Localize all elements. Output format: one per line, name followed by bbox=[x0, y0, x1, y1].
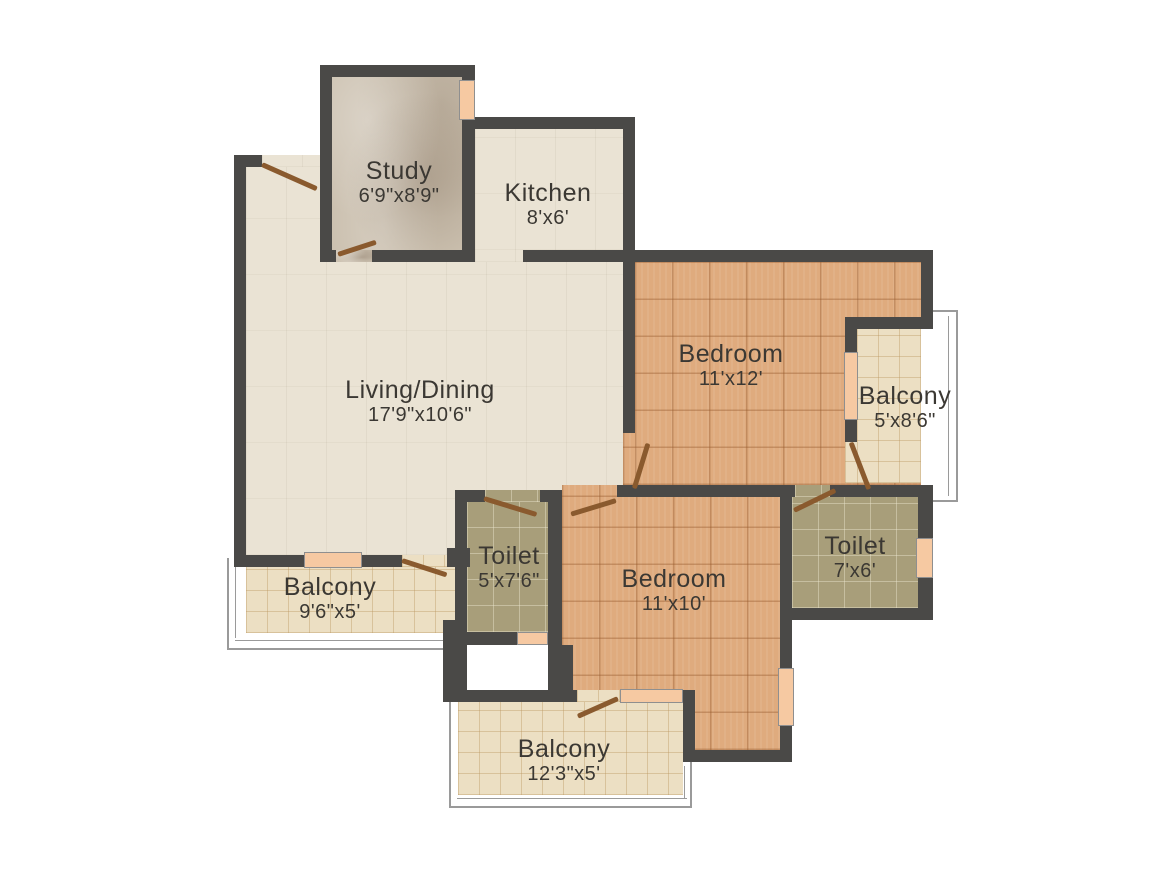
wall bbox=[234, 155, 246, 567]
wall bbox=[780, 608, 933, 620]
wall bbox=[455, 632, 517, 645]
room-name: Living/Dining bbox=[345, 376, 495, 404]
wall bbox=[372, 250, 475, 262]
wall bbox=[362, 555, 402, 567]
wall bbox=[780, 485, 795, 497]
balcony2-railing bbox=[227, 558, 229, 650]
bedroom1-label: Bedroom 11'x12' bbox=[679, 340, 784, 390]
wall bbox=[623, 117, 635, 262]
room-dims: 17'9"x10'6" bbox=[345, 404, 495, 426]
bedroom2-balcony-window bbox=[620, 689, 683, 703]
living-balcony-window bbox=[304, 552, 362, 568]
balcony2-railing bbox=[235, 562, 236, 638]
room-name: Toilet bbox=[824, 532, 885, 560]
toilet1-label: Toilet 5'x7'6" bbox=[478, 542, 540, 592]
room-dims: 5'x7'6" bbox=[478, 570, 540, 592]
room-dims: 9'6"x5' bbox=[284, 601, 376, 623]
balcony2-railing bbox=[227, 648, 461, 650]
room-name: Toilet bbox=[478, 542, 540, 570]
room-dims: 6'9"x8'9" bbox=[359, 185, 440, 207]
wall bbox=[548, 490, 562, 645]
bedroom2-doorway bbox=[562, 485, 617, 497]
kitchen-opening bbox=[475, 250, 523, 262]
room-dims: 11'x10' bbox=[622, 593, 727, 615]
toilet2-label: Toilet 7'x6' bbox=[824, 532, 885, 582]
balcony3-railing bbox=[449, 806, 692, 808]
bedroom1-doorway bbox=[623, 433, 635, 485]
balcony3-railing bbox=[684, 766, 685, 798]
balcony3-label: Balcony 12'3"x5' bbox=[518, 735, 610, 785]
wall bbox=[320, 65, 475, 77]
wall bbox=[320, 250, 336, 262]
room-name: Balcony bbox=[859, 382, 951, 410]
bedroom1-balcony-window bbox=[844, 352, 858, 420]
wall bbox=[455, 490, 467, 702]
wall bbox=[234, 555, 304, 567]
wall bbox=[320, 65, 332, 262]
bedroom2-window bbox=[778, 668, 794, 726]
room-name: Kitchen bbox=[505, 179, 592, 207]
toilet2-window bbox=[916, 538, 933, 578]
balcony3-railing bbox=[449, 702, 451, 808]
balcony2-label: Balcony 9'6"x5' bbox=[284, 573, 376, 623]
wall bbox=[560, 690, 577, 702]
kitchen-label: Kitchen 8'x6' bbox=[505, 179, 592, 229]
living-dining-label: Living/Dining 17'9"x10'6" bbox=[345, 376, 495, 426]
wall bbox=[683, 750, 792, 762]
balcony1-label: Balcony 5'x8'6" bbox=[859, 382, 951, 432]
room-dims: 8'x6' bbox=[505, 207, 592, 229]
room-dims: 5'x8'6" bbox=[859, 410, 951, 432]
duct-shaft bbox=[467, 645, 548, 690]
floor-plan: Study 6'9"x8'9" Kitchen 8'x6' Living/Din… bbox=[0, 0, 1160, 870]
room-name: Balcony bbox=[284, 573, 376, 601]
wall bbox=[635, 250, 933, 262]
study-window bbox=[459, 80, 475, 120]
toilet1-window bbox=[517, 632, 548, 645]
study-label: Study 6'9"x8'9" bbox=[359, 157, 440, 207]
wall bbox=[462, 117, 635, 129]
wall bbox=[623, 262, 635, 433]
balcony1-railing bbox=[933, 500, 958, 502]
room-name: Bedroom bbox=[679, 340, 784, 368]
room-name: Study bbox=[359, 157, 440, 185]
balcony2-railing bbox=[235, 640, 457, 641]
wall bbox=[523, 250, 635, 262]
room-dims: 12'3"x5' bbox=[518, 763, 610, 785]
room-dims: 11'x12' bbox=[679, 368, 784, 390]
room-name: Balcony bbox=[518, 735, 610, 763]
wall bbox=[640, 485, 780, 497]
wall bbox=[845, 317, 933, 329]
room-name: Bedroom bbox=[622, 565, 727, 593]
wall bbox=[467, 490, 485, 502]
room-dims: 7'x6' bbox=[824, 560, 885, 582]
balcony3-railing bbox=[690, 760, 692, 808]
bedroom2-label: Bedroom 11'x10' bbox=[622, 565, 727, 615]
balcony3-railing bbox=[457, 798, 687, 799]
balcony1-railing bbox=[956, 310, 958, 502]
balcony1-railing bbox=[933, 310, 958, 312]
